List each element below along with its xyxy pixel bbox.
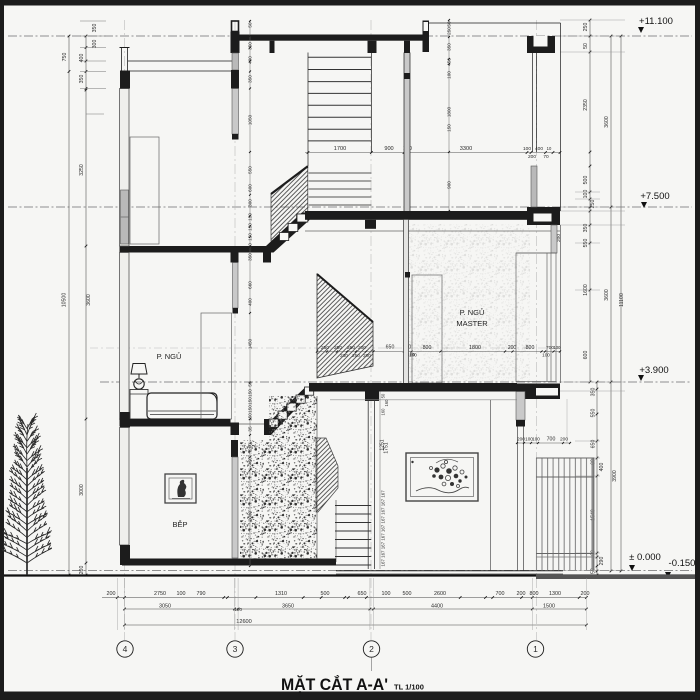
svg-text:35: 35 [248, 426, 253, 432]
svg-text:250: 250 [583, 23, 589, 32]
svg-text:400: 400 [248, 56, 253, 64]
svg-text:50: 50 [381, 393, 386, 398]
svg-text:MẶT CẮT A-A': MẶT CẮT A-A' [281, 675, 388, 694]
svg-text:250: 250 [352, 353, 360, 358]
svg-text:1300: 1300 [549, 591, 561, 597]
svg-text:350: 350 [248, 253, 253, 261]
svg-text:200: 200 [556, 234, 562, 242]
svg-text:100: 100 [554, 345, 562, 350]
svg-text:4: 4 [123, 644, 128, 654]
svg-text:550: 550 [248, 166, 253, 174]
svg-text:3250: 3250 [79, 164, 85, 176]
svg-text:1450: 1450 [248, 338, 253, 349]
svg-text:50: 50 [447, 21, 452, 27]
svg-text:660: 660 [248, 281, 253, 289]
svg-text:150: 150 [248, 389, 253, 397]
svg-text:700: 700 [496, 591, 505, 597]
svg-text:150: 150 [447, 124, 452, 132]
svg-text:200: 200 [79, 566, 85, 575]
svg-text:3050: 3050 [159, 604, 171, 610]
svg-text:200: 200 [517, 437, 525, 443]
svg-text:900: 900 [447, 181, 452, 189]
svg-text:12600: 12600 [236, 619, 252, 625]
svg-text:200: 200 [560, 437, 568, 443]
svg-text:+7.500: +7.500 [640, 191, 669, 202]
svg-text:230: 230 [340, 353, 348, 358]
svg-text:750: 750 [62, 53, 68, 62]
svg-text:50: 50 [248, 22, 253, 28]
svg-text:100: 100 [382, 591, 391, 597]
svg-text:10: 10 [547, 146, 552, 151]
svg-text:160: 160 [384, 399, 389, 407]
svg-text:BỄP: BỄP [172, 520, 187, 529]
svg-text:167: 167 [381, 533, 386, 541]
svg-text:200: 200 [581, 591, 590, 597]
svg-text:100: 100 [542, 353, 550, 358]
svg-text:1800: 1800 [447, 106, 452, 117]
svg-text:400: 400 [535, 146, 543, 152]
svg-text:10500: 10500 [62, 293, 68, 308]
svg-text:650: 650 [386, 345, 395, 351]
svg-text:700: 700 [547, 437, 556, 443]
svg-text:3600: 3600 [86, 294, 92, 306]
svg-text:200: 200 [358, 345, 366, 350]
svg-text:100: 100 [447, 71, 452, 79]
svg-text:167: 167 [381, 541, 386, 549]
svg-text:800: 800 [530, 591, 539, 597]
svg-text:TL 1/100: TL 1/100 [394, 683, 424, 692]
svg-text:290: 290 [599, 557, 605, 566]
svg-text:160: 160 [381, 408, 386, 416]
svg-text:3600: 3600 [604, 116, 610, 128]
svg-text:1: 1 [533, 644, 538, 654]
svg-text:± 0.000: ± 0.000 [629, 552, 661, 563]
svg-text:250: 250 [321, 345, 329, 351]
svg-text:167: 167 [381, 550, 386, 558]
svg-text:1700: 1700 [334, 146, 346, 152]
svg-text:-0.150: -0.150 [669, 558, 696, 569]
svg-text:2750: 2750 [154, 591, 166, 597]
svg-text:3000: 3000 [79, 484, 85, 496]
svg-text:+11.100: +11.100 [639, 16, 673, 27]
svg-text:650: 650 [358, 591, 367, 597]
svg-text:350: 350 [248, 75, 253, 83]
svg-text:167: 167 [381, 516, 386, 524]
svg-text:100: 100 [583, 190, 589, 199]
svg-text:100: 100 [532, 437, 540, 442]
svg-text:250: 250 [334, 345, 342, 351]
svg-text:400: 400 [599, 463, 605, 472]
svg-text:1500: 1500 [543, 604, 555, 610]
svg-text:2600: 2600 [434, 591, 446, 597]
svg-text:790: 790 [197, 591, 206, 597]
svg-text:550: 550 [591, 409, 597, 418]
svg-text:11100: 11100 [619, 293, 625, 307]
svg-text:150: 150 [248, 397, 253, 405]
svg-text:250: 250 [347, 345, 355, 351]
svg-text:200: 200 [517, 591, 526, 597]
svg-text:P. NGỦ: P. NGỦ [157, 352, 182, 361]
svg-text:1751: 1751 [384, 442, 390, 453]
svg-text:3: 3 [233, 644, 238, 654]
svg-text:167: 167 [381, 559, 386, 567]
svg-text:500: 500 [321, 591, 330, 597]
svg-text:150: 150 [248, 405, 253, 413]
svg-text:3300: 3300 [460, 146, 472, 152]
svg-text:300: 300 [248, 199, 253, 207]
svg-text:50: 50 [583, 43, 589, 49]
svg-text:100: 100 [523, 146, 531, 152]
svg-text:600: 600 [248, 184, 253, 192]
svg-text:3600: 3600 [604, 289, 610, 301]
svg-text:167: 167 [381, 524, 386, 532]
svg-text:167: 167 [381, 498, 386, 506]
svg-text:4400: 4400 [431, 604, 443, 610]
svg-text:1050: 1050 [248, 114, 253, 125]
svg-text:167: 167 [381, 507, 386, 515]
svg-text:350: 350 [447, 43, 452, 51]
svg-text:150: 150 [248, 213, 253, 221]
svg-text:350: 350 [591, 388, 597, 397]
svg-text:2350: 2350 [583, 99, 589, 111]
svg-text:2: 2 [369, 644, 374, 654]
svg-text:200: 200 [107, 591, 116, 597]
svg-text:50: 50 [248, 381, 253, 387]
svg-text:200: 200 [363, 353, 371, 358]
svg-text:400: 400 [248, 298, 253, 306]
svg-text:167: 167 [381, 490, 386, 498]
svg-text:+3.900: +3.900 [639, 365, 668, 376]
svg-text:350: 350 [79, 75, 85, 84]
svg-text:350: 350 [92, 24, 98, 33]
svg-text:200: 200 [528, 154, 536, 160]
svg-text:3900: 3900 [612, 470, 618, 482]
svg-text:500: 500 [583, 176, 589, 185]
svg-text:100: 100 [177, 591, 186, 597]
svg-text:300: 300 [92, 40, 98, 49]
svg-text:900: 900 [384, 146, 393, 152]
svg-text:450: 450 [447, 58, 452, 66]
svg-text:3650: 3650 [282, 604, 294, 610]
svg-text:250: 250 [447, 27, 452, 35]
svg-text:500: 500 [403, 591, 412, 597]
svg-text:70: 70 [543, 154, 549, 160]
svg-text:1310: 1310 [275, 591, 287, 597]
svg-text:600: 600 [583, 351, 589, 360]
svg-text:350: 350 [248, 42, 253, 50]
